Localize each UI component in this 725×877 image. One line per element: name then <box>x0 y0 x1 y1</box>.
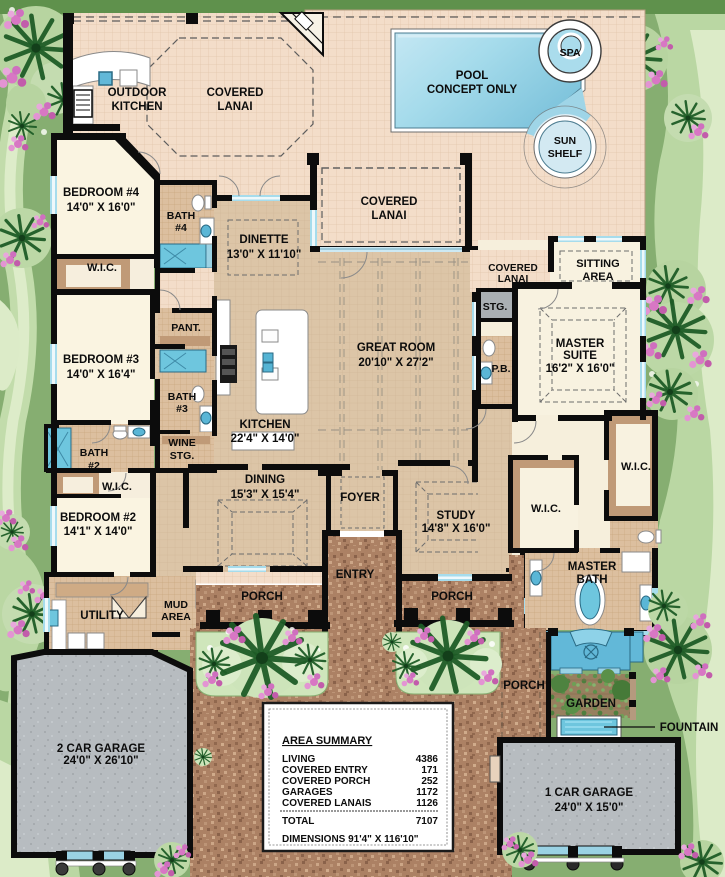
svg-text:1 CAR GARAGE: 1 CAR GARAGE <box>545 787 634 799</box>
svg-text:1126: 1126 <box>416 798 438 809</box>
svg-text:AREA: AREA <box>582 271 613 283</box>
svg-text:BEDROOM #3: BEDROOM #3 <box>63 354 139 366</box>
svg-text:20'10" X 27'2": 20'10" X 27'2" <box>358 357 433 369</box>
svg-text:PANT.: PANT. <box>171 322 201 334</box>
svg-text:16'2" X 16'0": 16'2" X 16'0" <box>546 363 615 375</box>
svg-text:PORCH: PORCH <box>431 591 473 603</box>
svg-text:1172: 1172 <box>416 787 438 798</box>
svg-text:COVERED PORCH: COVERED PORCH <box>282 776 370 787</box>
svg-text:BEDROOM #4: BEDROOM #4 <box>63 187 140 199</box>
svg-text:POOL: POOL <box>456 70 489 82</box>
svg-text:#4: #4 <box>175 222 187 234</box>
svg-text:TOTAL: TOTAL <box>282 816 314 827</box>
svg-text:SPA: SPA <box>560 47 581 59</box>
svg-text:LANAI: LANAI <box>217 101 252 113</box>
svg-text:BATH: BATH <box>167 210 195 222</box>
svg-text:MASTER: MASTER <box>556 338 605 350</box>
svg-text:MASTER: MASTER <box>568 561 617 573</box>
svg-text:STG.: STG. <box>483 301 508 313</box>
svg-text:ENTRY: ENTRY <box>336 569 375 581</box>
svg-text:DINING: DINING <box>245 474 285 486</box>
svg-text:14'8" X 16'0": 14'8" X 16'0" <box>422 523 491 535</box>
svg-text:SHELF: SHELF <box>548 148 583 160</box>
svg-text:UTILITY: UTILITY <box>80 610 124 622</box>
svg-text:LANAI: LANAI <box>498 274 529 285</box>
svg-text:COVERED: COVERED <box>207 87 264 99</box>
svg-text:KITCHEN: KITCHEN <box>111 101 162 113</box>
svg-text:BATH: BATH <box>168 391 196 403</box>
svg-text:KITCHEN: KITCHEN <box>239 419 290 431</box>
svg-text:COVERED: COVERED <box>361 196 418 208</box>
svg-text:7107: 7107 <box>416 816 439 827</box>
svg-text:WINE: WINE <box>168 437 195 449</box>
svg-text:2 CAR GARAGE: 2 CAR GARAGE <box>57 743 146 755</box>
svg-text:FOYER: FOYER <box>340 492 380 504</box>
svg-text:OUTDOOR: OUTDOOR <box>108 87 167 99</box>
svg-text:PORCH: PORCH <box>503 680 545 692</box>
svg-text:PORCH: PORCH <box>241 591 283 603</box>
svg-text:#2: #2 <box>88 460 100 472</box>
svg-text:22'4" X 14'0": 22'4" X 14'0" <box>231 433 300 445</box>
svg-text:252: 252 <box>421 776 438 787</box>
svg-text:13'0" X 11'10": 13'0" X 11'10" <box>227 249 302 261</box>
svg-text:4386: 4386 <box>416 754 439 765</box>
svg-text:14'0" X 16'4": 14'0" X 16'4" <box>67 369 136 381</box>
svg-text:CONCEPT ONLY: CONCEPT ONLY <box>427 84 518 96</box>
svg-text:W.I.C.: W.I.C. <box>102 481 132 493</box>
svg-text:W.I.C.: W.I.C. <box>531 503 561 515</box>
svg-text:24'0" X 15'0": 24'0" X 15'0" <box>555 802 624 814</box>
svg-text:AREA: AREA <box>161 611 191 623</box>
svg-text:GARDEN: GARDEN <box>566 698 616 710</box>
svg-text:SUN: SUN <box>554 135 576 147</box>
svg-text:171: 171 <box>421 765 438 776</box>
svg-text:W.I.C.: W.I.C. <box>621 461 651 473</box>
svg-text:COVERED LANAIS: COVERED LANAIS <box>282 798 372 809</box>
svg-text:LIVING: LIVING <box>282 754 316 765</box>
svg-text:GREAT ROOM: GREAT ROOM <box>357 342 435 354</box>
svg-text:W.I.C.: W.I.C. <box>87 262 117 274</box>
svg-text:STUDY: STUDY <box>437 510 476 522</box>
svg-text:14'0" X 16'0": 14'0" X 16'0" <box>67 202 136 214</box>
svg-text:STG.: STG. <box>170 450 195 462</box>
svg-text:SITTING: SITTING <box>576 258 619 270</box>
svg-text:BEDROOM #2: BEDROOM #2 <box>60 512 136 524</box>
svg-text:24'0" X 26'10": 24'0" X 26'10" <box>63 755 138 767</box>
svg-text:LANAI: LANAI <box>371 210 406 222</box>
svg-text:MUD: MUD <box>164 599 188 611</box>
svg-text:#3: #3 <box>176 403 188 415</box>
svg-text:COVERED: COVERED <box>488 263 537 274</box>
svg-text:BATH: BATH <box>80 447 108 459</box>
svg-text:P.B.: P.B. <box>491 363 510 375</box>
svg-text:15'3" X 15'4": 15'3" X 15'4" <box>231 489 300 501</box>
svg-text:SUITE: SUITE <box>563 350 597 362</box>
svg-text:14'1" X 14'0": 14'1" X 14'0" <box>64 526 133 538</box>
svg-text:AREA SUMMARY: AREA SUMMARY <box>282 735 373 747</box>
svg-text:BATH: BATH <box>576 574 607 586</box>
svg-text:GARAGES: GARAGES <box>282 787 333 798</box>
svg-text:FOUNTAIN: FOUNTAIN <box>660 722 719 734</box>
svg-text:DIMENSIONS 91'4" X 116'10": DIMENSIONS 91'4" X 116'10" <box>282 834 419 845</box>
svg-text:COVERED ENTRY: COVERED ENTRY <box>282 765 368 776</box>
svg-text:DINETTE: DINETTE <box>239 234 289 246</box>
